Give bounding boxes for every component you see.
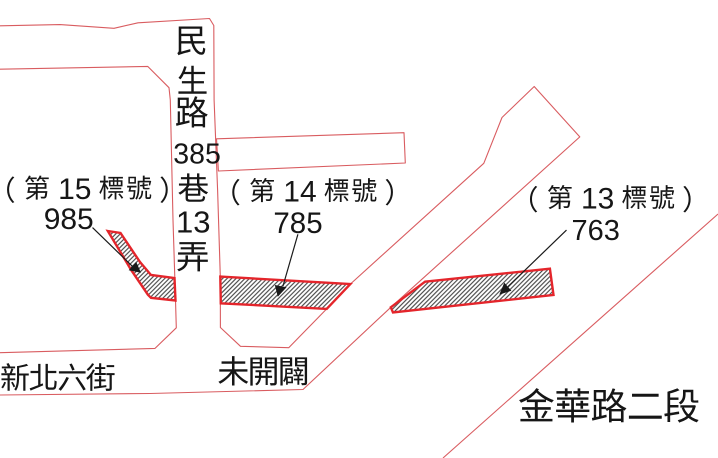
- svg-text:14: 14: [283, 176, 316, 209]
- svg-text:985: 985: [44, 203, 94, 236]
- svg-text:385: 385: [173, 138, 221, 170]
- svg-text:15: 15: [58, 173, 91, 206]
- svg-text:13: 13: [176, 205, 210, 240]
- svg-text:763: 763: [572, 215, 620, 247]
- svg-text:785: 785: [273, 207, 322, 240]
- svg-text:13: 13: [581, 183, 614, 216]
